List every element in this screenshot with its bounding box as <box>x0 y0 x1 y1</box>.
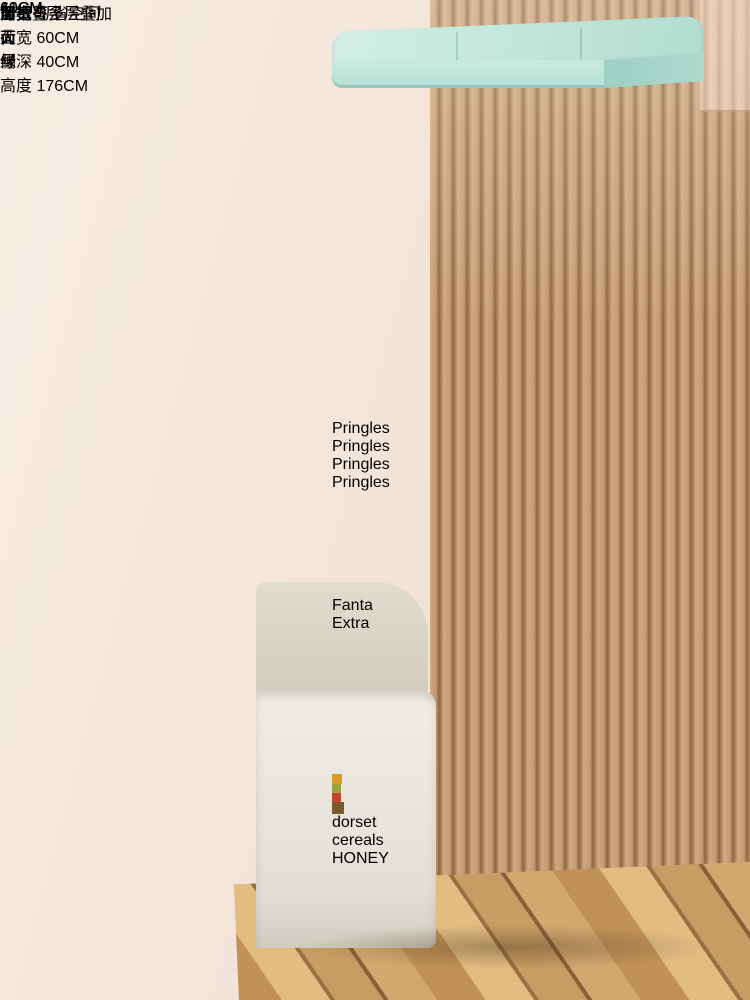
spec-row-width: 面宽 60CM <box>0 24 88 48</box>
spec-label: 面宽 <box>0 30 32 47</box>
cereal-brand-line2: cereals <box>332 832 384 849</box>
towel-roll <box>332 66 410 144</box>
cereal-art-dot <box>332 802 344 814</box>
spec-value: 60CM <box>36 30 79 47</box>
chips-can-yellow: Pringles <box>332 456 390 474</box>
cabinet-tier3: Pringles Pringles Pringles Pringles <box>332 420 604 597</box>
lid-panel-line <box>580 27 582 61</box>
cereal-art-dot <box>332 774 342 784</box>
tier5-window: dorset cereals HONEY <box>332 774 389 868</box>
cabinet-tier4: Fanta Extra <box>332 597 604 774</box>
snack-label: HONEY <box>332 850 389 867</box>
tier3-window: Pringles Pringles Pringles Pringles <box>332 420 390 492</box>
towel-roll <box>332 144 404 216</box>
tier4-window: Fanta Extra <box>332 597 373 633</box>
beer-label: Extra <box>332 615 369 632</box>
beer-cans-content: Extra <box>332 615 373 633</box>
spec-value: 40CM <box>36 54 79 71</box>
chips-label: Pringles <box>332 438 390 455</box>
spec-value: 176CM <box>36 78 88 95</box>
soda-cans-content: Fanta <box>332 597 373 615</box>
wood-slat-wall-highlight <box>700 0 750 112</box>
snack-bag-orange: HONEY <box>332 850 389 868</box>
stack-feature-caption: 凹槽可多层叠加 <box>0 0 112 24</box>
chips-label: Pringles <box>332 474 390 491</box>
cereal-brand-line1: dorset <box>332 814 376 831</box>
cereal-art-dot <box>332 793 341 802</box>
cereal-brand: dorset cereals <box>332 814 389 850</box>
product-promo-image: Pringles Pringles Pringles Pringles Fant… <box>0 0 750 1000</box>
towel-roll <box>332 322 406 396</box>
chips-can-red: Pringles <box>332 438 390 456</box>
spec-row-height: 高度 176CM <box>0 72 88 96</box>
towel-roll <box>332 242 412 322</box>
cereal-art-dot <box>332 784 341 793</box>
spec-label: 高度 <box>0 78 32 95</box>
cabinet-tier1 <box>332 66 604 242</box>
chips-can-green2: Pringles <box>332 474 390 492</box>
chips-label: Pringles <box>332 420 390 437</box>
spec-label: 侧深 <box>0 54 32 71</box>
chips-can-green: Pringles <box>332 420 390 438</box>
cereal-box-dark: dorset cereals <box>332 774 389 850</box>
soda-label: Fanta <box>332 597 373 614</box>
spec-row-depth: 侧深 40CM <box>0 48 88 72</box>
cabinet-tier5: dorset cereals HONEY <box>332 774 604 950</box>
cabinet-tier2 <box>332 242 604 420</box>
chips-label: Pringles <box>332 456 390 473</box>
